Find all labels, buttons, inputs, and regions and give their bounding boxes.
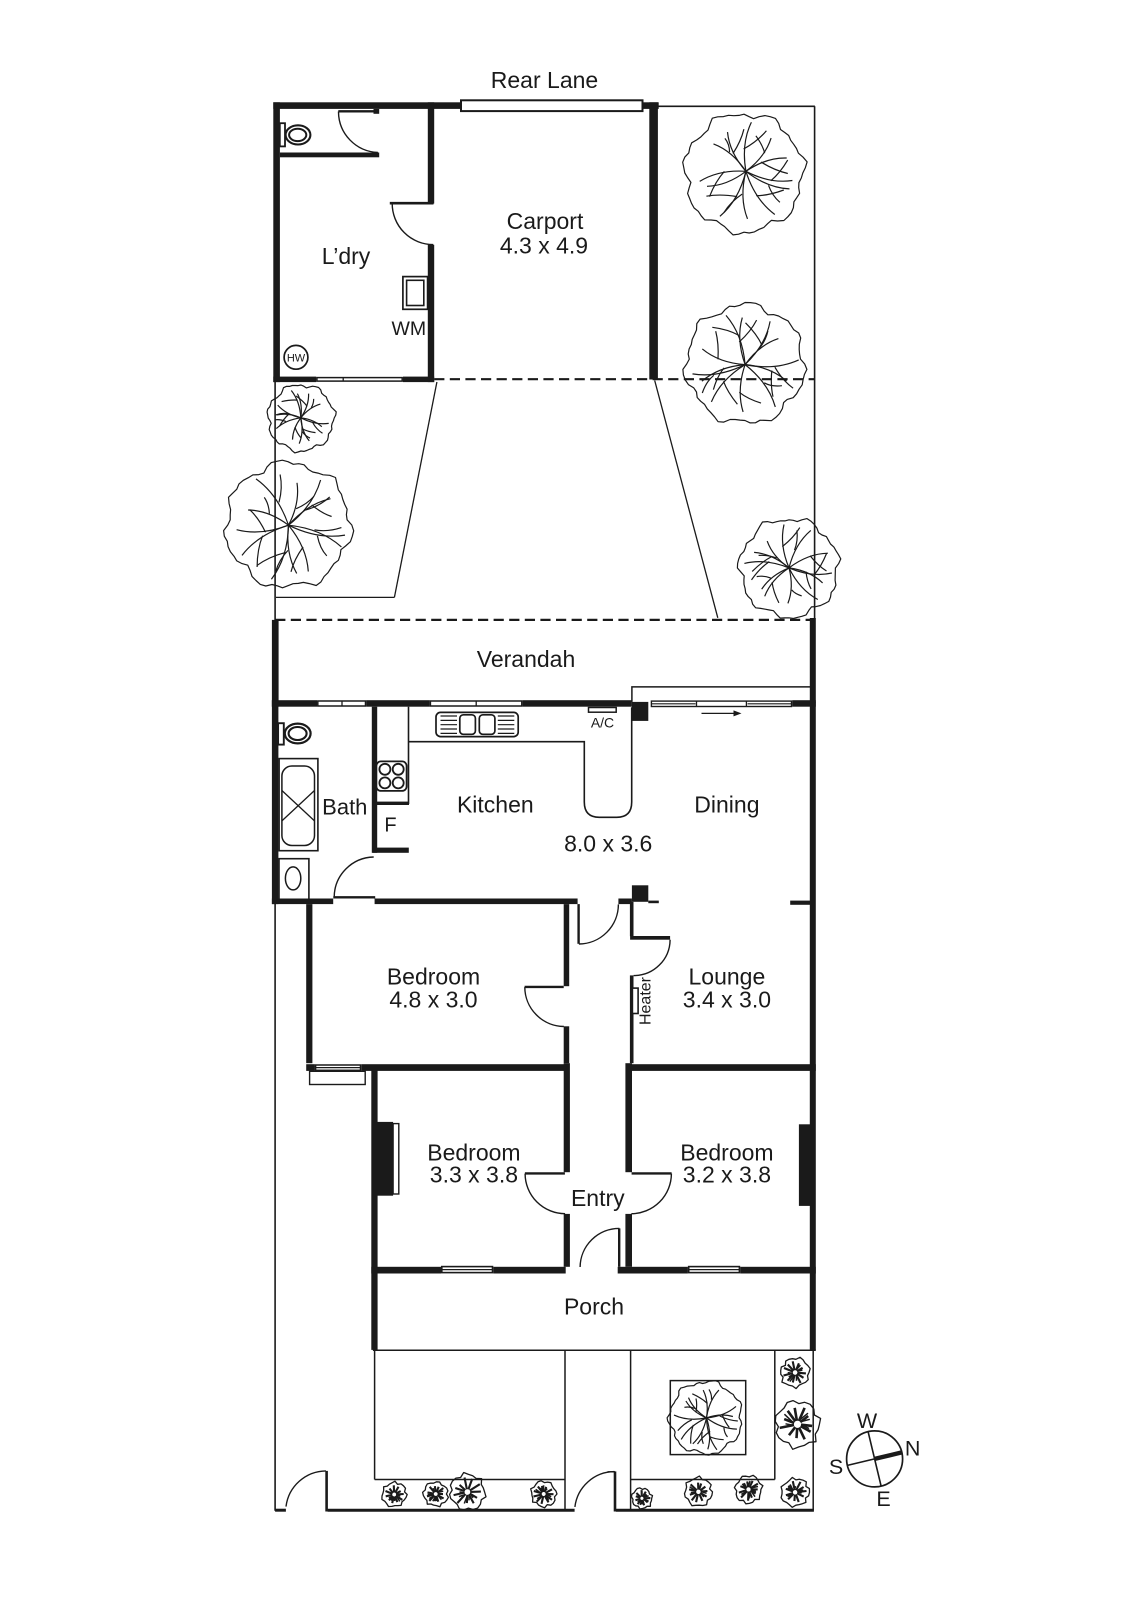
svg-text:8.0 x 3.6: 8.0 x 3.6 xyxy=(564,831,652,857)
svg-text:A/C: A/C xyxy=(591,715,614,731)
svg-text:Dining: Dining xyxy=(694,791,759,817)
svg-text:N: N xyxy=(905,1437,921,1461)
svg-text:S: S xyxy=(829,1455,843,1479)
svg-text:L’dry: L’dry xyxy=(322,243,371,269)
svg-text:Heater: Heater xyxy=(638,976,655,1025)
svg-text:Verandah: Verandah xyxy=(477,646,575,672)
svg-text:Bath: Bath xyxy=(322,795,367,820)
svg-text:4.8 x 3.0: 4.8 x 3.0 xyxy=(389,987,477,1013)
svg-text:4.3 x 4.9: 4.3 x 4.9 xyxy=(500,233,588,259)
svg-text:3.3 x 3.8: 3.3 x 3.8 xyxy=(430,1161,518,1187)
svg-text:Carport: Carport xyxy=(507,208,584,234)
svg-text:WM: WM xyxy=(391,318,426,340)
svg-text:F: F xyxy=(384,815,396,837)
svg-text:Rear Lane: Rear Lane xyxy=(491,67,598,93)
svg-text:W: W xyxy=(857,1409,878,1433)
svg-text:E: E xyxy=(876,1487,890,1511)
svg-text:3.2 x 3.8: 3.2 x 3.8 xyxy=(683,1161,771,1187)
svg-text:Entry: Entry xyxy=(571,1185,625,1211)
svg-text:HW: HW xyxy=(287,352,306,364)
svg-text:Porch: Porch xyxy=(564,1294,624,1320)
svg-text:3.4 x 3.0: 3.4 x 3.0 xyxy=(683,987,771,1013)
svg-text:Kitchen: Kitchen xyxy=(457,791,534,817)
